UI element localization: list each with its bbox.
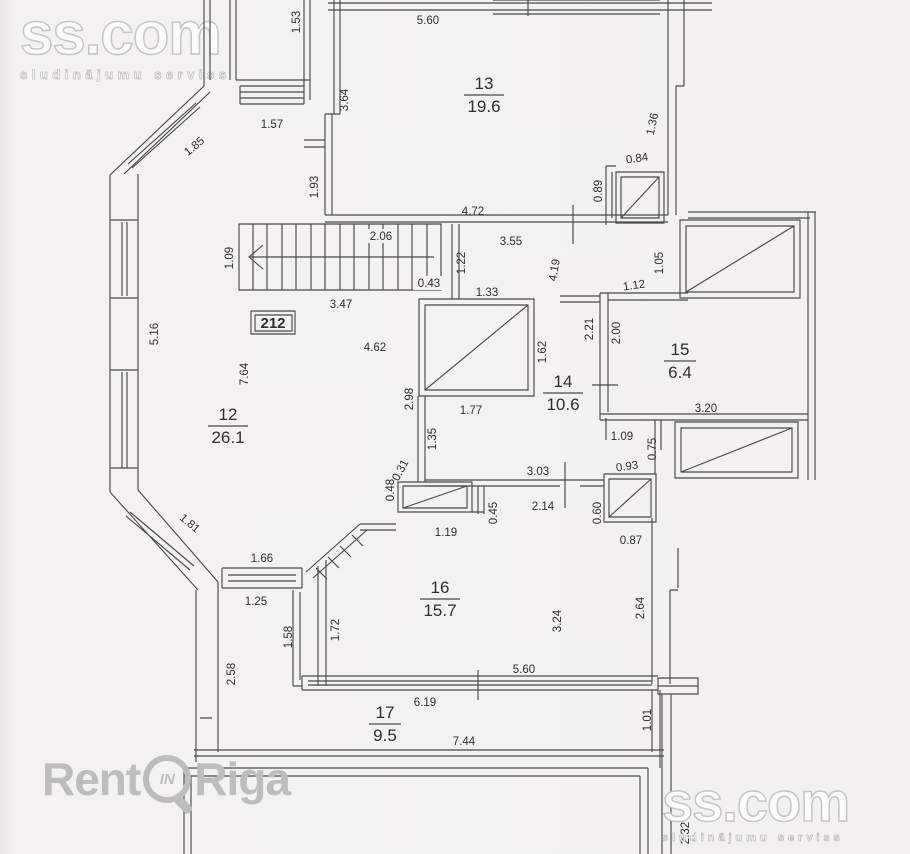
room-area: 6.4 (668, 363, 692, 382)
dimension-label: 2.32 (680, 822, 692, 844)
wall-right-outer (808, 212, 815, 480)
dimension-label: 1.22 (456, 252, 468, 274)
plan-labels: 1.535.603.641.571.851.360.840.891.934.72… (149, 11, 717, 844)
dimension-label: 1.25 (245, 596, 267, 608)
dimension-label: 1.53 (291, 11, 303, 33)
dimension-label: 1.85 (182, 135, 207, 159)
dimension-label: 1.19 (435, 527, 457, 539)
wall-bottom-rect (184, 768, 648, 854)
room-area: 26.1 (211, 428, 244, 447)
wall-center-x418 (418, 396, 425, 482)
dimension-label: 0.43 (418, 278, 440, 290)
shaft-box-central (419, 299, 534, 396)
dimension-label: 0.48 (385, 479, 397, 501)
dimension-label: 3.20 (695, 403, 717, 415)
dimension-label: 2.14 (532, 501, 555, 513)
room-number: 12 (219, 405, 238, 424)
dimension-label: 4.19 (547, 258, 563, 282)
room-area: 19.6 (467, 97, 500, 116)
wall-bay-octagon (110, 86, 218, 590)
dimension-label: 1.36 (645, 112, 661, 136)
dimension-label: 5.60 (417, 15, 439, 27)
loggia-box-lower-right (675, 422, 798, 478)
room-area: 9.5 (373, 726, 397, 745)
dimension-label: 1.09 (224, 247, 236, 269)
wall-right-bottom-nub (658, 678, 698, 694)
dimension-label: 1.93 (309, 176, 321, 198)
wall-right-bottom (662, 694, 671, 854)
floorplan-drawing: 1.535.603.641.571.851.360.840.891.934.72… (0, 0, 910, 854)
dimension-label: 1.09 (611, 431, 633, 443)
dimension-label: 3.03 (527, 466, 549, 478)
wall-room13-right (668, 0, 684, 215)
dimension-label: 1.01 (642, 709, 654, 731)
dimension-label: 2.58 (226, 663, 238, 685)
room-area: 15.7 (423, 601, 456, 620)
dimension-label: 0.87 (620, 535, 642, 547)
dimension-label: 1.12 (622, 278, 646, 293)
wall-center-x480 (472, 486, 484, 514)
apartment-number: 212 (260, 315, 285, 332)
dimension-label: 1.77 (460, 405, 482, 417)
dimension-label: 3.55 (500, 236, 522, 248)
dimension-label: 1.35 (427, 428, 439, 450)
walls (110, 0, 816, 854)
dimension-label: 1.62 (537, 341, 549, 363)
window-room16-bottom (302, 670, 658, 700)
dimension-label: 2.06 (370, 231, 392, 243)
shaft-box-right (604, 474, 656, 522)
dimension-label: 1.58 (283, 626, 295, 648)
dimension-label: 7.44 (453, 736, 476, 748)
dimension-label: 1.81 (177, 512, 202, 536)
dimension-label: 2.64 (635, 596, 647, 619)
wall-top (328, 0, 712, 16)
room-number: 15 (671, 340, 690, 359)
dimension-label: 0.84 (625, 151, 649, 166)
floorplan-scan: ss.com sludinājumu serviss (0, 0, 910, 854)
dimension-label: 5.16 (149, 323, 161, 345)
window-bay-bottom (222, 568, 302, 588)
wall-room15 (592, 293, 808, 420)
door-hatch-diagonal (306, 524, 367, 579)
dimension-label: 2.00 (611, 322, 623, 344)
wall-room16-right (652, 518, 678, 684)
dimension-label: 3.64 (339, 88, 351, 111)
wall-left-lower (196, 582, 218, 762)
dimension-label: 1.05 (654, 252, 666, 274)
room-area: 10.6 (546, 395, 579, 414)
dimension-label: 0.93 (615, 459, 639, 474)
dimension-label: 2.21 (584, 318, 596, 340)
room-number: 16 (431, 578, 450, 597)
room-number: 14 (554, 372, 573, 391)
room-number: 17 (376, 703, 395, 722)
dimension-label: 5.60 (513, 664, 535, 676)
dimension-label: 1.33 (476, 287, 498, 299)
loggia-box-top-right (680, 220, 800, 298)
room-number: 13 (475, 74, 494, 93)
dimension-label: 6.19 (414, 697, 436, 709)
wall-room14-top (560, 296, 600, 302)
stairs (239, 224, 441, 290)
dimension-label: 2.98 (404, 388, 416, 410)
wall-room16-left (318, 524, 396, 686)
dimension-label: 0.89 (593, 180, 605, 202)
dimension-label: 0.75 (647, 438, 659, 460)
dimension-label: 1.66 (251, 553, 273, 565)
dimension-label: 3.24 (552, 609, 564, 632)
dimension-label: 3.47 (330, 299, 352, 311)
dimension-label: 7.64 (239, 362, 251, 385)
dimension-label: 1.57 (261, 119, 283, 131)
shaft-box-top (606, 166, 664, 225)
dimension-label: 1.72 (330, 619, 342, 641)
dimension-label: 4.72 (462, 206, 484, 218)
wall-right-section-top (688, 212, 816, 218)
wall-corridor-horizontal (425, 462, 604, 508)
dimension-label: 4.62 (364, 342, 386, 354)
dimension-label: 0.60 (592, 502, 604, 524)
dimension-label: 0.45 (488, 502, 500, 524)
